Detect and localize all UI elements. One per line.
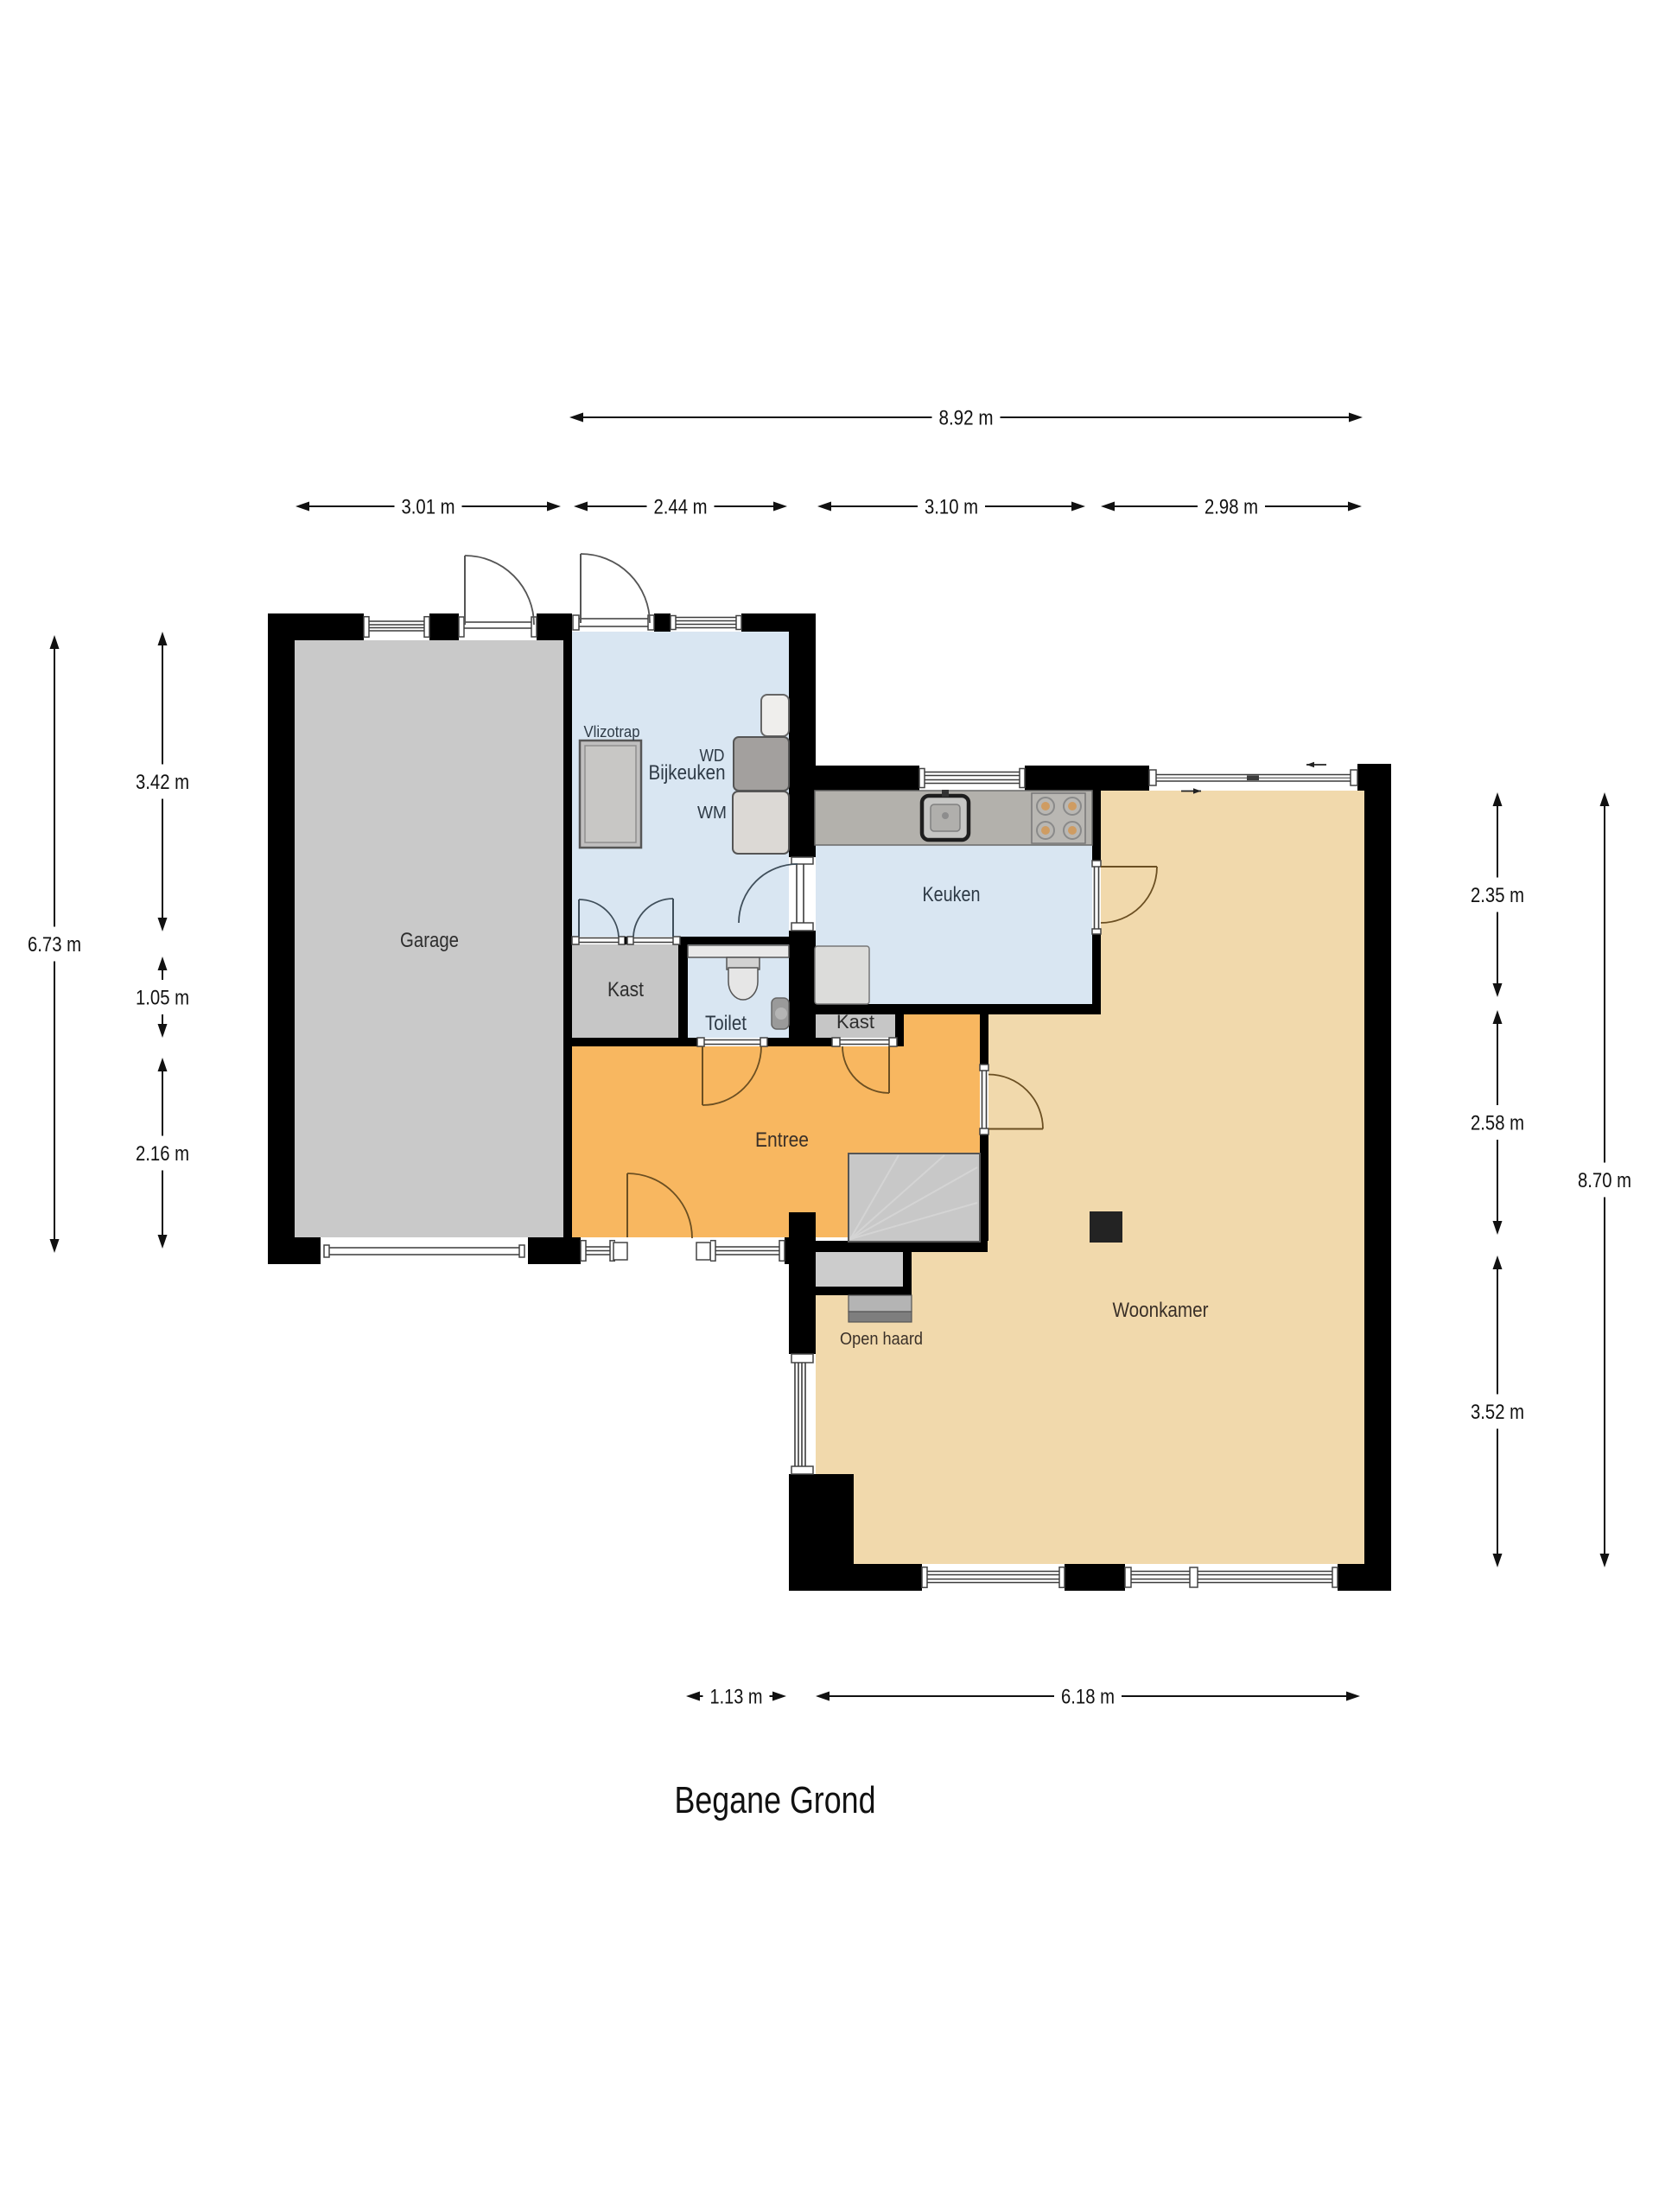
svg-text:Begane Grond: Begane Grond xyxy=(675,1779,876,1821)
svg-text:3.10 m: 3.10 m xyxy=(925,496,978,519)
svg-text:Keuken: Keuken xyxy=(923,883,981,906)
svg-text:Kast: Kast xyxy=(607,978,644,1001)
svg-text:Garage: Garage xyxy=(400,929,459,952)
svg-text:8.70 m: 8.70 m xyxy=(1578,1169,1631,1192)
svg-text:Vlizotrap: Vlizotrap xyxy=(584,723,640,741)
svg-text:Kast: Kast xyxy=(836,1011,874,1033)
svg-text:Woonkamer: Woonkamer xyxy=(1113,1299,1209,1322)
svg-text:8.92 m: 8.92 m xyxy=(939,407,994,430)
svg-text:2.58 m: 2.58 m xyxy=(1471,1112,1524,1135)
svg-text:3.42 m: 3.42 m xyxy=(136,771,189,794)
svg-text:1.13 m: 1.13 m xyxy=(710,1686,763,1709)
svg-text:2.16 m: 2.16 m xyxy=(136,1142,189,1166)
svg-text:2.44 m: 2.44 m xyxy=(654,496,708,519)
svg-text:Entree: Entree xyxy=(755,1128,809,1152)
svg-text:1.05 m: 1.05 m xyxy=(136,987,189,1010)
svg-text:WM: WM xyxy=(697,804,727,823)
svg-text:3.52 m: 3.52 m xyxy=(1471,1401,1524,1424)
svg-text:WD: WD xyxy=(700,747,725,766)
svg-text:6.18 m: 6.18 m xyxy=(1061,1686,1115,1709)
svg-text:2.35 m: 2.35 m xyxy=(1471,884,1524,907)
svg-text:6.73 m: 6.73 m xyxy=(28,933,81,957)
svg-text:Toilet: Toilet xyxy=(705,1012,747,1035)
svg-text:Open haard: Open haard xyxy=(840,1330,923,1349)
svg-text:2.98 m: 2.98 m xyxy=(1205,496,1258,519)
svg-text:3.01 m: 3.01 m xyxy=(402,496,455,519)
